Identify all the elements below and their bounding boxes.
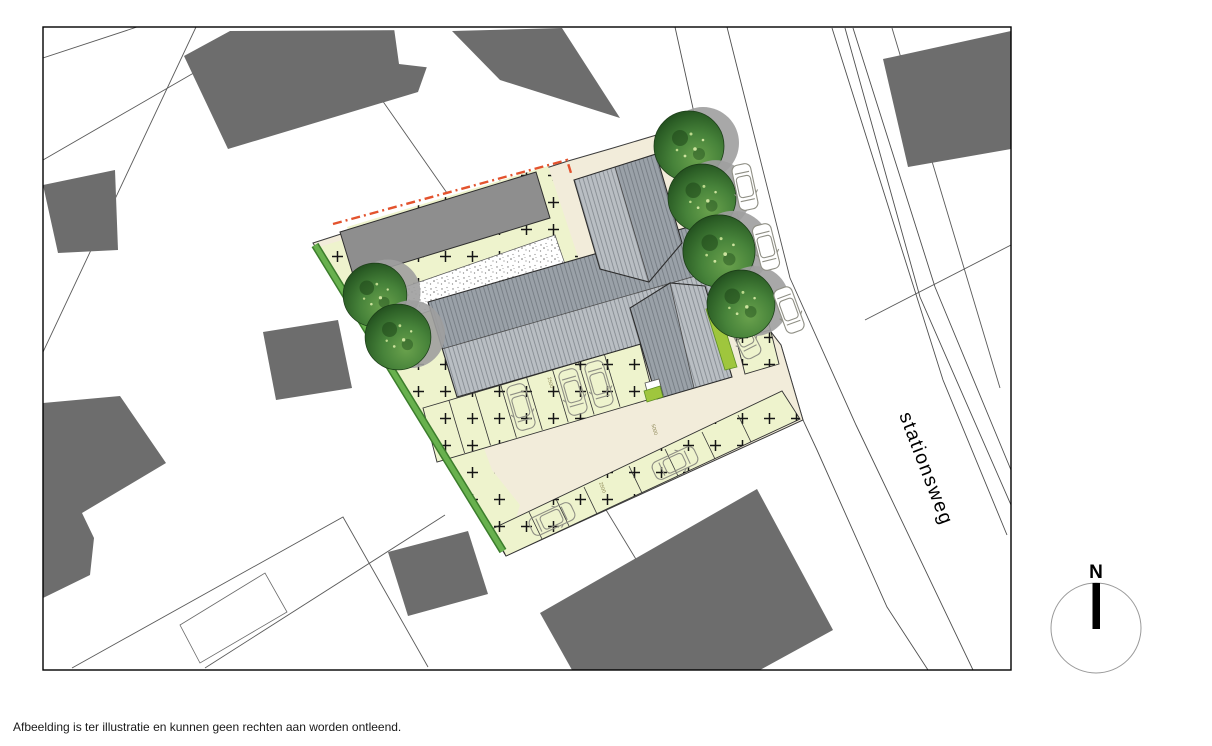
plan-content: 2500 5000 2500 [43, 27, 1011, 670]
neighbor-building [388, 531, 488, 616]
neighbor-building [452, 28, 620, 118]
compass-rose: N [1051, 562, 1141, 673]
road-label: stationsweg [894, 409, 957, 528]
site-plan-drawing: 2500 5000 2500 [0, 0, 1212, 746]
compass-label: N [1089, 562, 1103, 583]
building-notch [394, 28, 441, 68]
site-plan-page: 2500 5000 2500 [0, 0, 1212, 746]
caption: Afbeelding is ter illustratie en kunnen … [13, 720, 401, 734]
neighbor-building [43, 396, 166, 598]
neighbor-building [263, 320, 352, 400]
neighbor-building [43, 170, 118, 253]
north-arrow [1093, 583, 1101, 629]
neighbor-building [883, 31, 1011, 167]
